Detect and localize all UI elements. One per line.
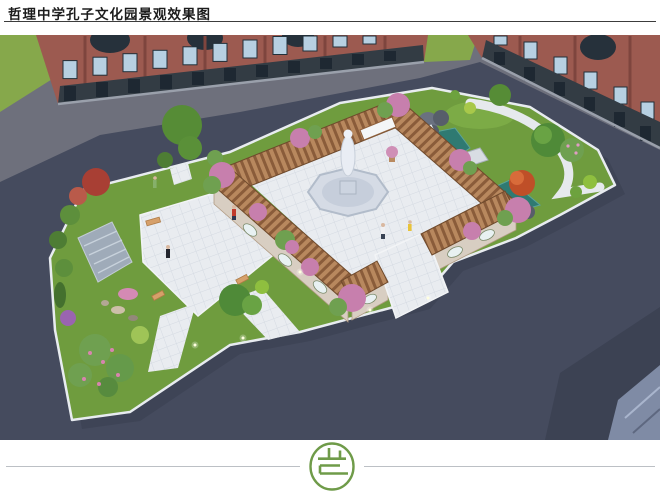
confucius-statue [341, 136, 355, 176]
statue-head [344, 130, 353, 139]
visitor-figure [381, 223, 385, 239]
rendering-canvas [0, 35, 660, 440]
tree [489, 84, 511, 106]
rendering-image [0, 35, 660, 440]
visitor-figure [408, 220, 412, 231]
title-underline [4, 21, 656, 22]
statue-pedestal [340, 181, 356, 194]
tree [178, 136, 202, 160]
red-maple [82, 168, 110, 196]
tree [560, 138, 584, 162]
page-title: 哲理中学孔子文化园景观效果图 [8, 3, 211, 23]
visitor-figure [166, 245, 170, 258]
seal-logo-icon [302, 437, 362, 497]
purple-shrub [60, 310, 76, 326]
footer-divider-right [364, 466, 655, 467]
footer-divider-left [6, 466, 300, 467]
visitor-figure [232, 205, 236, 220]
red-maple [69, 187, 87, 205]
brand-logo [302, 437, 362, 497]
visitor-figure [153, 176, 157, 188]
cypress [54, 282, 66, 308]
presentation-board: { "page": { "title": "哲理中学孔子文化园景观效果图", "… [0, 0, 660, 495]
flower-bed [118, 288, 138, 300]
